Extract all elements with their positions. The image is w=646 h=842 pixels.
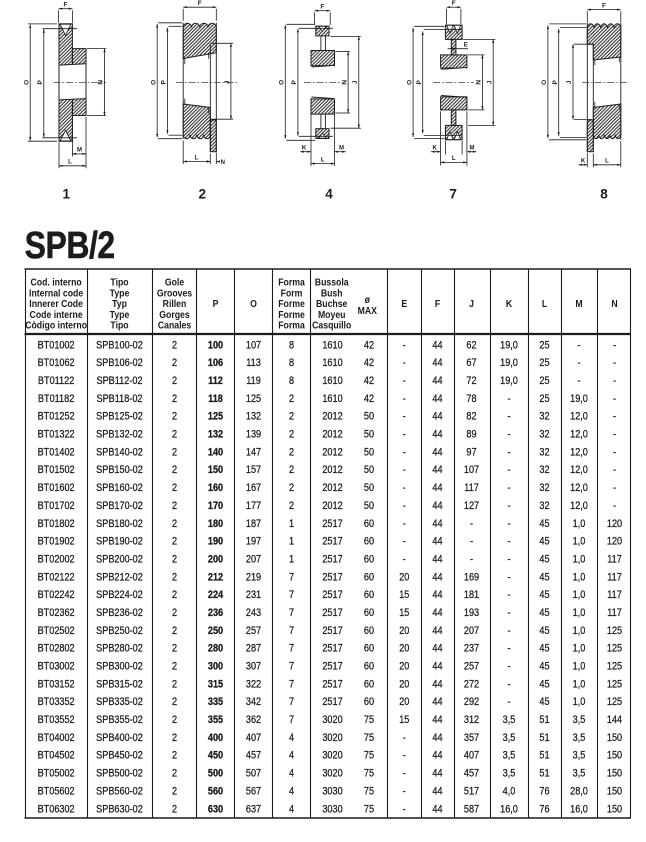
svg-text:3030: 3030: [322, 786, 343, 798]
svg-text:219: 219: [246, 572, 262, 584]
svg-text:-: -: [403, 411, 406, 423]
svg-text:19,0: 19,0: [500, 375, 518, 387]
svg-text:2: 2: [172, 607, 177, 619]
svg-text:257: 257: [246, 625, 262, 637]
svg-text:2012: 2012: [322, 482, 343, 494]
svg-text:407: 407: [246, 732, 262, 744]
svg-text:-: -: [507, 589, 510, 601]
svg-text:F: F: [602, 3, 606, 10]
svg-text:60: 60: [364, 679, 374, 691]
svg-text:50: 50: [364, 447, 374, 459]
svg-text:-: -: [403, 804, 406, 816]
svg-text:457: 457: [246, 750, 262, 762]
svg-text:BT02122: BT02122: [38, 572, 75, 584]
svg-text:BT01502: BT01502: [38, 465, 75, 477]
svg-text:-: -: [507, 625, 510, 637]
svg-text:SPB125-02: SPB125-02: [96, 411, 143, 423]
svg-text:2517: 2517: [322, 625, 343, 637]
svg-text:32: 32: [539, 411, 549, 423]
svg-text:4: 4: [325, 187, 333, 202]
svg-text:3,5: 3,5: [503, 714, 516, 726]
svg-text:BT01602: BT01602: [38, 482, 75, 494]
svg-text:2517: 2517: [322, 589, 343, 601]
svg-text:45: 45: [539, 518, 549, 530]
svg-text:1,0: 1,0: [573, 625, 586, 637]
svg-text:1,0: 1,0: [573, 518, 586, 530]
svg-text:2: 2: [172, 411, 177, 423]
svg-text:L: L: [195, 155, 199, 161]
svg-text:O: O: [279, 80, 286, 85]
svg-text:O: O: [406, 80, 413, 85]
svg-text:60: 60: [364, 518, 374, 530]
svg-text:150: 150: [607, 750, 623, 762]
svg-text:357: 357: [464, 732, 480, 744]
svg-text:28,0: 28,0: [570, 786, 588, 798]
svg-text:2012: 2012: [322, 447, 343, 459]
svg-text:45: 45: [539, 696, 549, 708]
svg-text:-: -: [577, 357, 580, 369]
svg-text:SPB/2: SPB/2: [25, 225, 115, 267]
svg-text:15: 15: [399, 714, 409, 726]
svg-text:-: -: [507, 411, 510, 423]
svg-text:P: P: [213, 298, 219, 310]
svg-text:J: J: [566, 80, 573, 84]
svg-text:8: 8: [289, 357, 294, 369]
svg-text:7: 7: [289, 625, 294, 637]
svg-text:1: 1: [289, 518, 294, 530]
svg-text:8: 8: [289, 375, 294, 387]
svg-text:180: 180: [208, 518, 224, 530]
svg-text:-: -: [403, 375, 406, 387]
svg-text:44: 44: [432, 607, 442, 619]
svg-text:BT05002: BT05002: [38, 768, 75, 780]
svg-text:Tipo: Tipo: [110, 320, 128, 332]
svg-text:117: 117: [607, 554, 622, 566]
svg-text:SPB106-02: SPB106-02: [96, 357, 143, 369]
svg-text:-: -: [507, 607, 510, 619]
svg-text:207: 207: [464, 625, 480, 637]
svg-text:7: 7: [289, 696, 294, 708]
svg-text:MAX: MAX: [358, 305, 378, 317]
svg-text:355: 355: [208, 714, 224, 726]
svg-text:SPB236-02: SPB236-02: [96, 607, 143, 619]
svg-text:76: 76: [539, 786, 549, 798]
svg-text:25: 25: [539, 393, 549, 405]
svg-text:4: 4: [289, 768, 294, 780]
svg-text:-: -: [613, 411, 616, 423]
svg-text:144: 144: [607, 714, 623, 726]
svg-text:75: 75: [364, 714, 374, 726]
svg-text:187: 187: [246, 518, 262, 530]
svg-text:44: 44: [432, 518, 442, 530]
svg-text:2517: 2517: [322, 536, 343, 548]
svg-text:125: 125: [607, 643, 623, 655]
svg-text:4: 4: [289, 732, 294, 744]
svg-text:2: 2: [172, 500, 177, 512]
svg-text:7: 7: [449, 187, 457, 202]
svg-text:1,0: 1,0: [573, 643, 586, 655]
svg-text:-: -: [613, 340, 616, 352]
svg-text:560: 560: [208, 786, 224, 798]
svg-text:44: 44: [432, 696, 442, 708]
svg-text:212: 212: [208, 572, 224, 584]
svg-text:236: 236: [208, 607, 224, 619]
svg-text:45: 45: [539, 643, 549, 655]
svg-text:-: -: [403, 518, 406, 530]
svg-text:-: -: [507, 679, 510, 691]
svg-text:7: 7: [289, 661, 294, 673]
svg-text:-: -: [577, 375, 580, 387]
svg-text:BT04002: BT04002: [38, 732, 75, 744]
svg-text:60: 60: [364, 572, 374, 584]
svg-text:BT03352: BT03352: [38, 696, 75, 708]
svg-text:8: 8: [289, 340, 294, 352]
svg-text:127: 127: [464, 500, 480, 512]
svg-text:1,0: 1,0: [573, 572, 586, 584]
svg-text:75: 75: [364, 732, 374, 744]
svg-text:44: 44: [432, 589, 442, 601]
svg-text:3,5: 3,5: [503, 750, 516, 762]
svg-text:SPB400-02: SPB400-02: [96, 732, 143, 744]
svg-text:12,0: 12,0: [570, 465, 588, 477]
svg-text:12,0: 12,0: [570, 482, 588, 494]
svg-text:362: 362: [246, 714, 262, 726]
svg-text:O: O: [250, 298, 257, 310]
svg-text:2517: 2517: [322, 679, 343, 691]
svg-text:3020: 3020: [322, 768, 343, 780]
svg-text:F: F: [64, 2, 68, 9]
svg-text:O: O: [23, 80, 30, 85]
svg-text:BT01252: BT01252: [38, 411, 75, 423]
svg-text:F: F: [452, 0, 456, 7]
svg-text:75: 75: [364, 750, 374, 762]
svg-text:280: 280: [208, 643, 224, 655]
svg-text:507: 507: [246, 768, 262, 780]
svg-text:50: 50: [364, 465, 374, 477]
svg-text:12,0: 12,0: [570, 447, 588, 459]
svg-text:-: -: [613, 429, 616, 441]
svg-text:44: 44: [432, 732, 442, 744]
svg-text:32: 32: [539, 500, 549, 512]
svg-text:3,5: 3,5: [503, 732, 516, 744]
svg-text:N: N: [611, 298, 617, 310]
svg-text:312: 312: [464, 714, 480, 726]
svg-text:-: -: [403, 786, 406, 798]
svg-text:500: 500: [208, 768, 224, 780]
svg-text:-: -: [507, 536, 510, 548]
svg-text:44: 44: [432, 500, 442, 512]
svg-text:15: 15: [399, 589, 409, 601]
svg-text:167: 167: [246, 482, 262, 494]
svg-text:N: N: [221, 160, 225, 166]
svg-text:P: P: [37, 79, 44, 84]
svg-text:F: F: [435, 298, 440, 310]
svg-text:150: 150: [208, 465, 224, 477]
svg-text:193: 193: [464, 607, 480, 619]
svg-text:50: 50: [364, 482, 374, 494]
svg-text:42: 42: [364, 375, 374, 387]
svg-text:7: 7: [289, 714, 294, 726]
svg-text:2012: 2012: [322, 500, 343, 512]
svg-text:L: L: [542, 298, 547, 310]
svg-text:140: 140: [208, 447, 224, 459]
svg-text:44: 44: [432, 411, 442, 423]
svg-text:BT01322: BT01322: [38, 429, 75, 441]
svg-text:BT01122: BT01122: [38, 375, 75, 387]
svg-text:117: 117: [607, 607, 622, 619]
svg-text:F: F: [198, 0, 202, 7]
svg-text:2: 2: [172, 482, 177, 494]
svg-text:150: 150: [607, 768, 623, 780]
svg-text:BT05602: BT05602: [38, 786, 75, 798]
svg-text:1,0: 1,0: [573, 607, 586, 619]
svg-text:8: 8: [600, 187, 608, 202]
svg-text:157: 157: [246, 465, 262, 477]
svg-text:SPB224-02: SPB224-02: [96, 589, 143, 601]
svg-text:L: L: [605, 159, 609, 165]
svg-text:75: 75: [364, 786, 374, 798]
svg-text:2517: 2517: [322, 643, 343, 655]
svg-text:E: E: [464, 42, 468, 48]
svg-text:-: -: [470, 536, 473, 548]
svg-text:SPB450-02: SPB450-02: [96, 750, 143, 762]
svg-text:Forma: Forma: [278, 320, 305, 332]
svg-text:20: 20: [399, 572, 409, 584]
svg-text:120: 120: [607, 536, 623, 548]
svg-text:SPB200-02: SPB200-02: [96, 554, 143, 566]
svg-text:118: 118: [208, 393, 223, 405]
svg-text:44: 44: [432, 536, 442, 548]
svg-text:SPB180-02: SPB180-02: [96, 518, 143, 530]
svg-text:125: 125: [607, 625, 623, 637]
svg-text:SPB170-02: SPB170-02: [96, 500, 143, 512]
svg-text:2: 2: [172, 589, 177, 601]
svg-text:SPB280-02: SPB280-02: [96, 643, 143, 655]
svg-text:60: 60: [364, 536, 374, 548]
svg-text:SPB160-02: SPB160-02: [96, 482, 143, 494]
svg-text:-: -: [403, 429, 406, 441]
svg-text:45: 45: [539, 554, 549, 566]
svg-text:Canales: Canales: [158, 320, 191, 332]
svg-text:7: 7: [289, 589, 294, 601]
svg-text:BT04502: BT04502: [38, 750, 75, 762]
svg-text:342: 342: [246, 696, 262, 708]
svg-text:112: 112: [208, 375, 223, 387]
svg-text:517: 517: [464, 786, 480, 798]
svg-text:2517: 2517: [322, 696, 343, 708]
svg-text:-: -: [403, 447, 406, 459]
svg-text:7: 7: [289, 572, 294, 584]
svg-text:567: 567: [246, 786, 262, 798]
svg-text:20: 20: [399, 643, 409, 655]
svg-text:BT03152: BT03152: [38, 679, 75, 691]
svg-text:2: 2: [172, 661, 177, 673]
svg-text:2: 2: [289, 447, 294, 459]
svg-text:2517: 2517: [322, 661, 343, 673]
svg-text:44: 44: [432, 714, 442, 726]
svg-text:L: L: [452, 156, 456, 162]
svg-text:100: 100: [208, 340, 224, 352]
svg-text:117: 117: [607, 589, 622, 601]
svg-text:3,5: 3,5: [573, 732, 586, 744]
svg-text:SPB335-02: SPB335-02: [96, 696, 143, 708]
svg-text:N: N: [341, 80, 348, 85]
svg-text:45: 45: [539, 625, 549, 637]
svg-text:N: N: [98, 80, 105, 85]
svg-text:SPB250-02: SPB250-02: [96, 625, 143, 637]
svg-text:-: -: [507, 643, 510, 655]
svg-text:60: 60: [364, 696, 374, 708]
svg-text:-: -: [507, 393, 510, 405]
svg-text:2: 2: [289, 411, 294, 423]
svg-text:O: O: [541, 80, 548, 85]
svg-text:P: P: [161, 79, 168, 84]
svg-text:-: -: [403, 750, 406, 762]
svg-text:Casquillo: Casquillo: [312, 320, 351, 332]
svg-text:-: -: [403, 482, 406, 494]
svg-text:-: -: [613, 375, 616, 387]
svg-text:7: 7: [289, 643, 294, 655]
svg-text:3,5: 3,5: [573, 768, 586, 780]
svg-text:M: M: [339, 146, 344, 152]
svg-text:50: 50: [364, 500, 374, 512]
svg-text:2: 2: [172, 393, 177, 405]
svg-text:44: 44: [432, 482, 442, 494]
svg-text:3030: 3030: [322, 804, 343, 816]
svg-text:450: 450: [208, 750, 224, 762]
svg-text:2: 2: [172, 768, 177, 780]
svg-text:-: -: [613, 357, 616, 369]
svg-text:-: -: [507, 518, 510, 530]
svg-text:3020: 3020: [322, 714, 343, 726]
svg-text:12,0: 12,0: [570, 500, 588, 512]
svg-text:SPB630-02: SPB630-02: [96, 804, 143, 816]
svg-text:2: 2: [289, 429, 294, 441]
svg-text:224: 224: [208, 589, 224, 601]
svg-text:2: 2: [289, 500, 294, 512]
svg-text:N: N: [476, 80, 483, 85]
svg-text:P: P: [416, 79, 423, 84]
svg-text:BT01182: BT01182: [38, 393, 75, 405]
svg-text:630: 630: [208, 804, 224, 816]
svg-text:44: 44: [432, 393, 442, 405]
svg-text:45: 45: [539, 661, 549, 673]
svg-text:BT01402: BT01402: [38, 447, 75, 459]
svg-text:BT01062: BT01062: [38, 357, 75, 369]
svg-text:BT01802: BT01802: [38, 518, 75, 530]
svg-text:-: -: [403, 536, 406, 548]
svg-text:125: 125: [607, 696, 623, 708]
svg-text:50: 50: [364, 429, 374, 441]
svg-text:2: 2: [289, 465, 294, 477]
svg-text:12,0: 12,0: [570, 411, 588, 423]
svg-text:2: 2: [172, 786, 177, 798]
svg-text:257: 257: [464, 661, 480, 673]
svg-text:M: M: [470, 146, 475, 152]
svg-text:BT01002: BT01002: [38, 340, 75, 352]
svg-text:120: 120: [607, 518, 623, 530]
svg-text:2: 2: [289, 393, 294, 405]
svg-text:-: -: [507, 465, 510, 477]
svg-text:117: 117: [464, 482, 479, 494]
svg-text:42: 42: [364, 357, 374, 369]
svg-text:-: -: [403, 393, 406, 405]
svg-text:J: J: [352, 80, 359, 84]
svg-text:BT06302: BT06302: [38, 804, 75, 816]
svg-text:J: J: [224, 80, 231, 84]
svg-text:72: 72: [466, 375, 476, 387]
svg-text:587: 587: [464, 804, 480, 816]
svg-text:44: 44: [432, 786, 442, 798]
svg-text:SPB112-02: SPB112-02: [97, 375, 143, 387]
svg-text:SPB355-02: SPB355-02: [96, 714, 143, 726]
svg-text:-: -: [613, 393, 616, 405]
svg-text:SPB500-02: SPB500-02: [96, 768, 143, 780]
svg-text:150: 150: [607, 804, 623, 816]
svg-text:20: 20: [399, 679, 409, 691]
svg-text:44: 44: [432, 554, 442, 566]
svg-text:67: 67: [466, 357, 476, 369]
svg-text:60: 60: [364, 643, 374, 655]
svg-text:231: 231: [246, 589, 262, 601]
svg-text:3,5: 3,5: [573, 750, 586, 762]
svg-text:BT02242: BT02242: [38, 589, 75, 601]
svg-text:BT03552: BT03552: [38, 714, 75, 726]
svg-text:-: -: [507, 429, 510, 441]
svg-text:-: -: [507, 554, 510, 566]
svg-text:-: -: [613, 447, 616, 459]
svg-text:7: 7: [289, 607, 294, 619]
svg-text:SPB315-02: SPB315-02: [96, 679, 143, 691]
svg-text:4: 4: [289, 750, 294, 762]
svg-text:60: 60: [364, 607, 374, 619]
svg-text:117: 117: [607, 572, 622, 584]
svg-text:60: 60: [364, 589, 374, 601]
svg-text:2: 2: [289, 482, 294, 494]
svg-text:45: 45: [539, 679, 549, 691]
svg-text:SPB132-02: SPB132-02: [96, 429, 143, 441]
svg-text:BT01702: BT01702: [38, 500, 75, 512]
svg-text:25: 25: [539, 375, 549, 387]
svg-text:4,0: 4,0: [503, 786, 516, 798]
svg-text:19,0: 19,0: [570, 393, 588, 405]
svg-text:113: 113: [246, 357, 261, 369]
svg-text:44: 44: [432, 465, 442, 477]
svg-text:1,0: 1,0: [573, 589, 586, 601]
svg-text:-: -: [507, 500, 510, 512]
svg-text:51: 51: [539, 732, 549, 744]
svg-text:82: 82: [466, 411, 476, 423]
svg-text:315: 315: [208, 679, 224, 691]
svg-text:J: J: [469, 298, 474, 310]
svg-text:20: 20: [399, 696, 409, 708]
svg-text:160: 160: [208, 482, 224, 494]
svg-text:-: -: [507, 482, 510, 494]
svg-text:2012: 2012: [322, 429, 343, 441]
svg-text:-: -: [403, 554, 406, 566]
svg-text:335: 335: [208, 696, 224, 708]
svg-text:2: 2: [172, 643, 177, 655]
svg-text:SPB190-02: SPB190-02: [96, 536, 143, 548]
svg-text:139: 139: [246, 429, 262, 441]
svg-text:51: 51: [539, 768, 549, 780]
svg-text:-: -: [507, 696, 510, 708]
svg-text:12,0: 12,0: [570, 429, 588, 441]
svg-text:1,0: 1,0: [573, 679, 586, 691]
svg-text:1: 1: [289, 554, 294, 566]
svg-text:BT02362: BT02362: [38, 607, 75, 619]
svg-text:1610: 1610: [322, 393, 343, 405]
